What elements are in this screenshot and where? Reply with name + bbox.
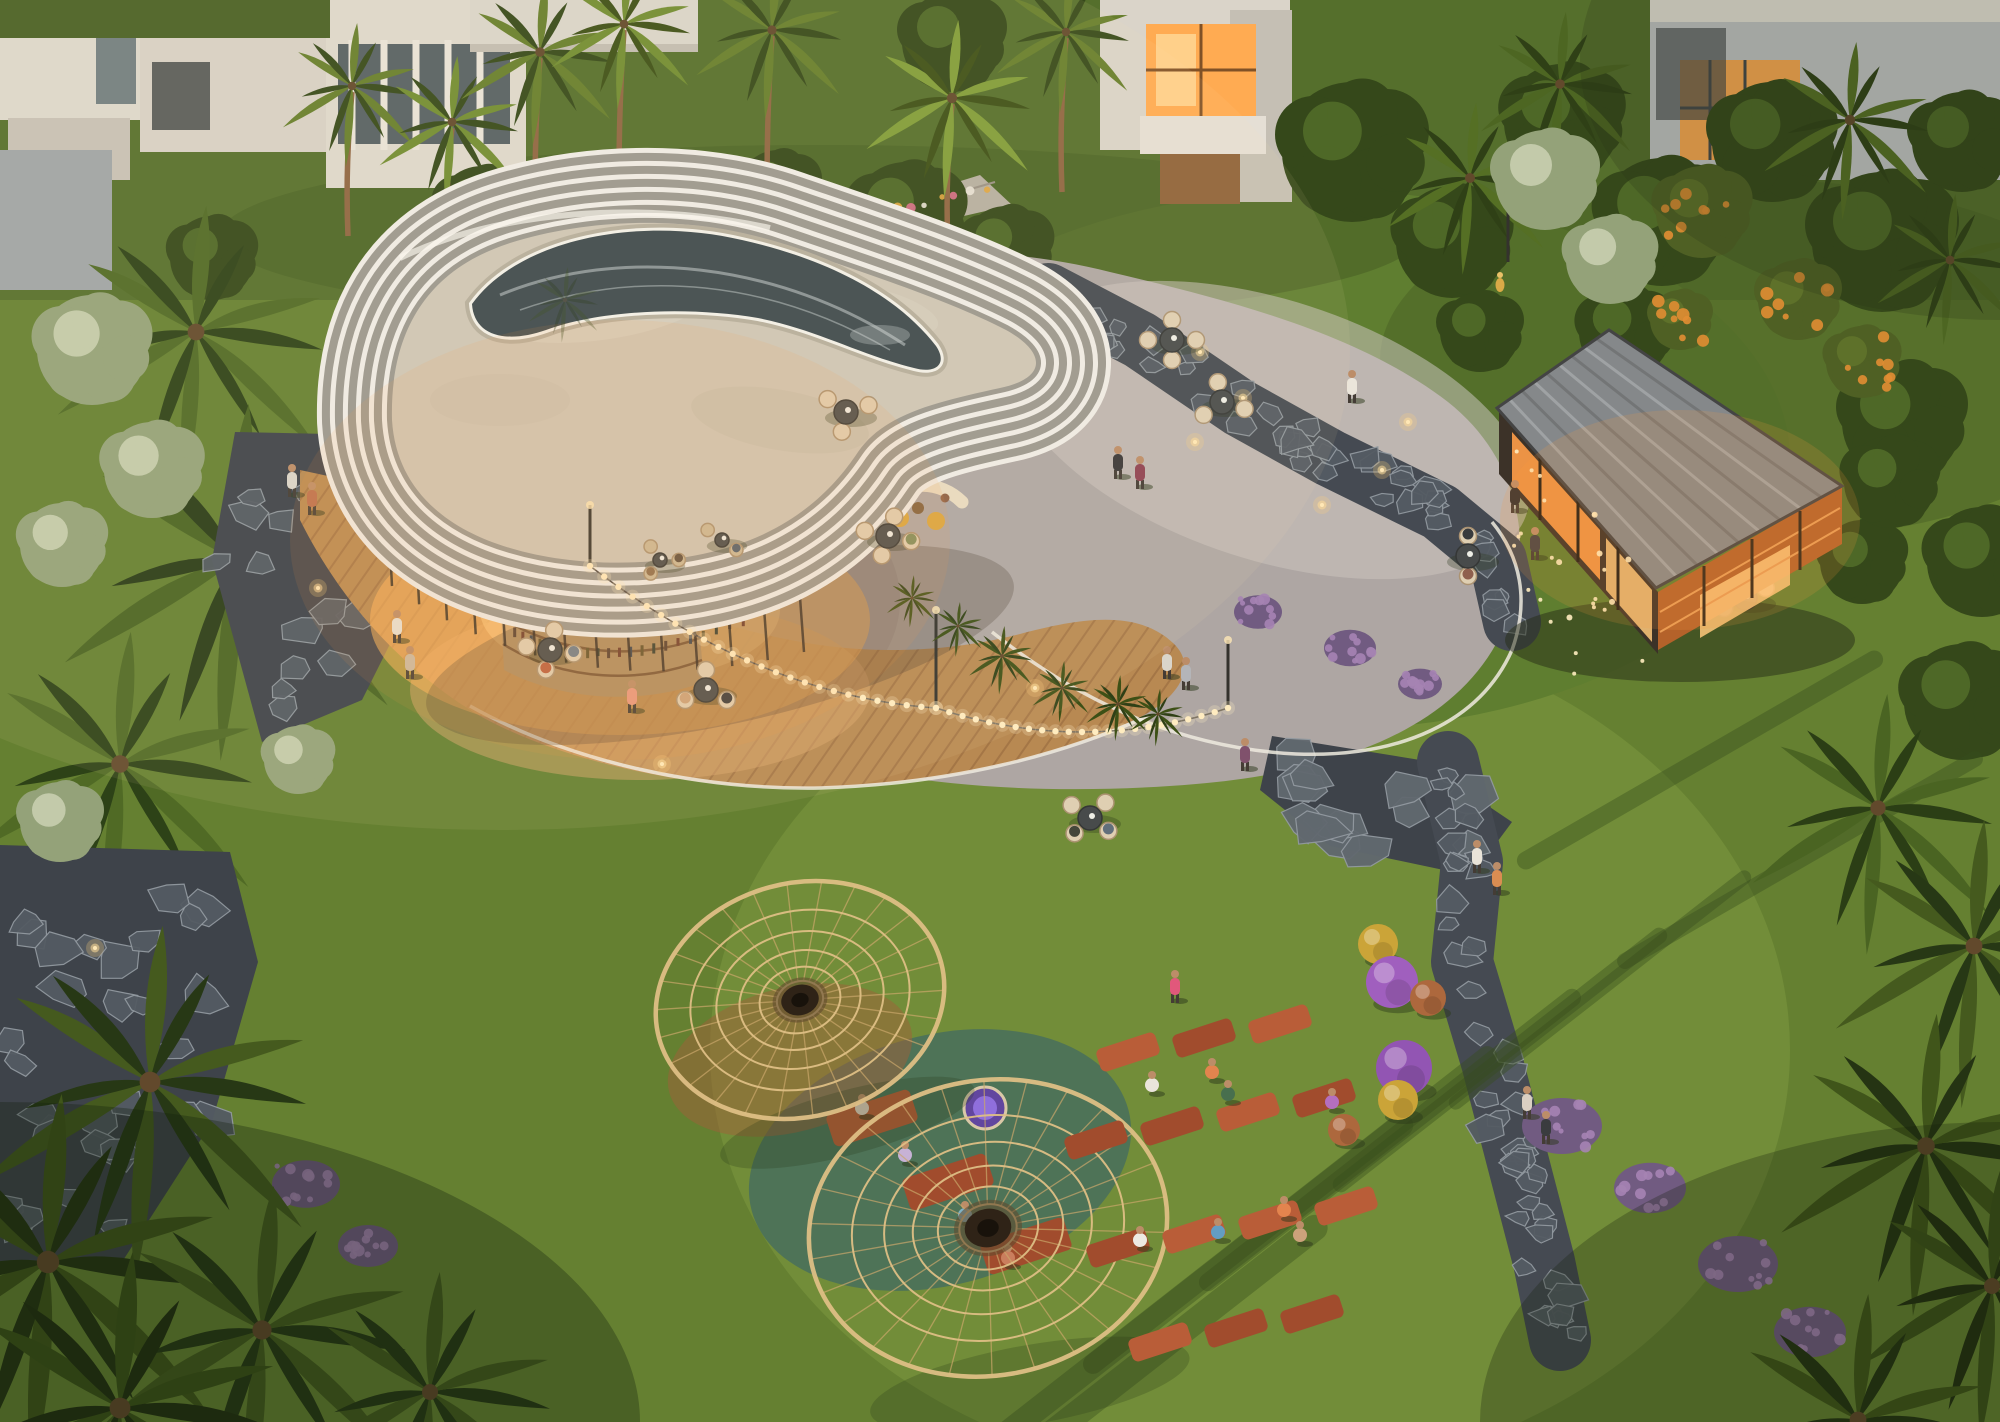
light-wash (0, 0, 2000, 1422)
aerial-render-community-courtyard (0, 0, 2000, 1422)
